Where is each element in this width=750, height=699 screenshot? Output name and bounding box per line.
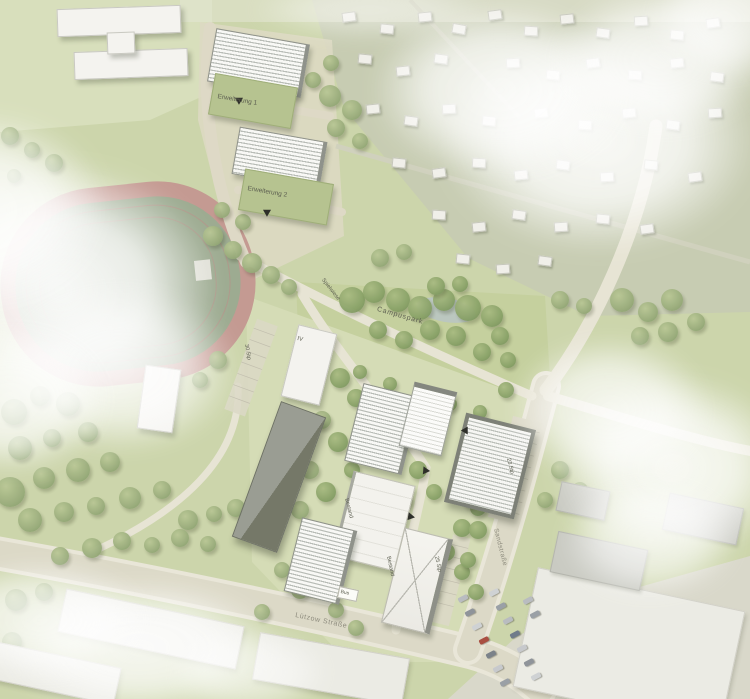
stadium-structure [194,259,212,281]
running-track [0,180,257,388]
ground-and-roads [0,0,750,699]
top-band [180,0,750,22]
stadium [0,180,257,388]
site-plan-canvas: Erweiterung 1 Erweiterung 2 Campuspark S… [0,0,750,699]
